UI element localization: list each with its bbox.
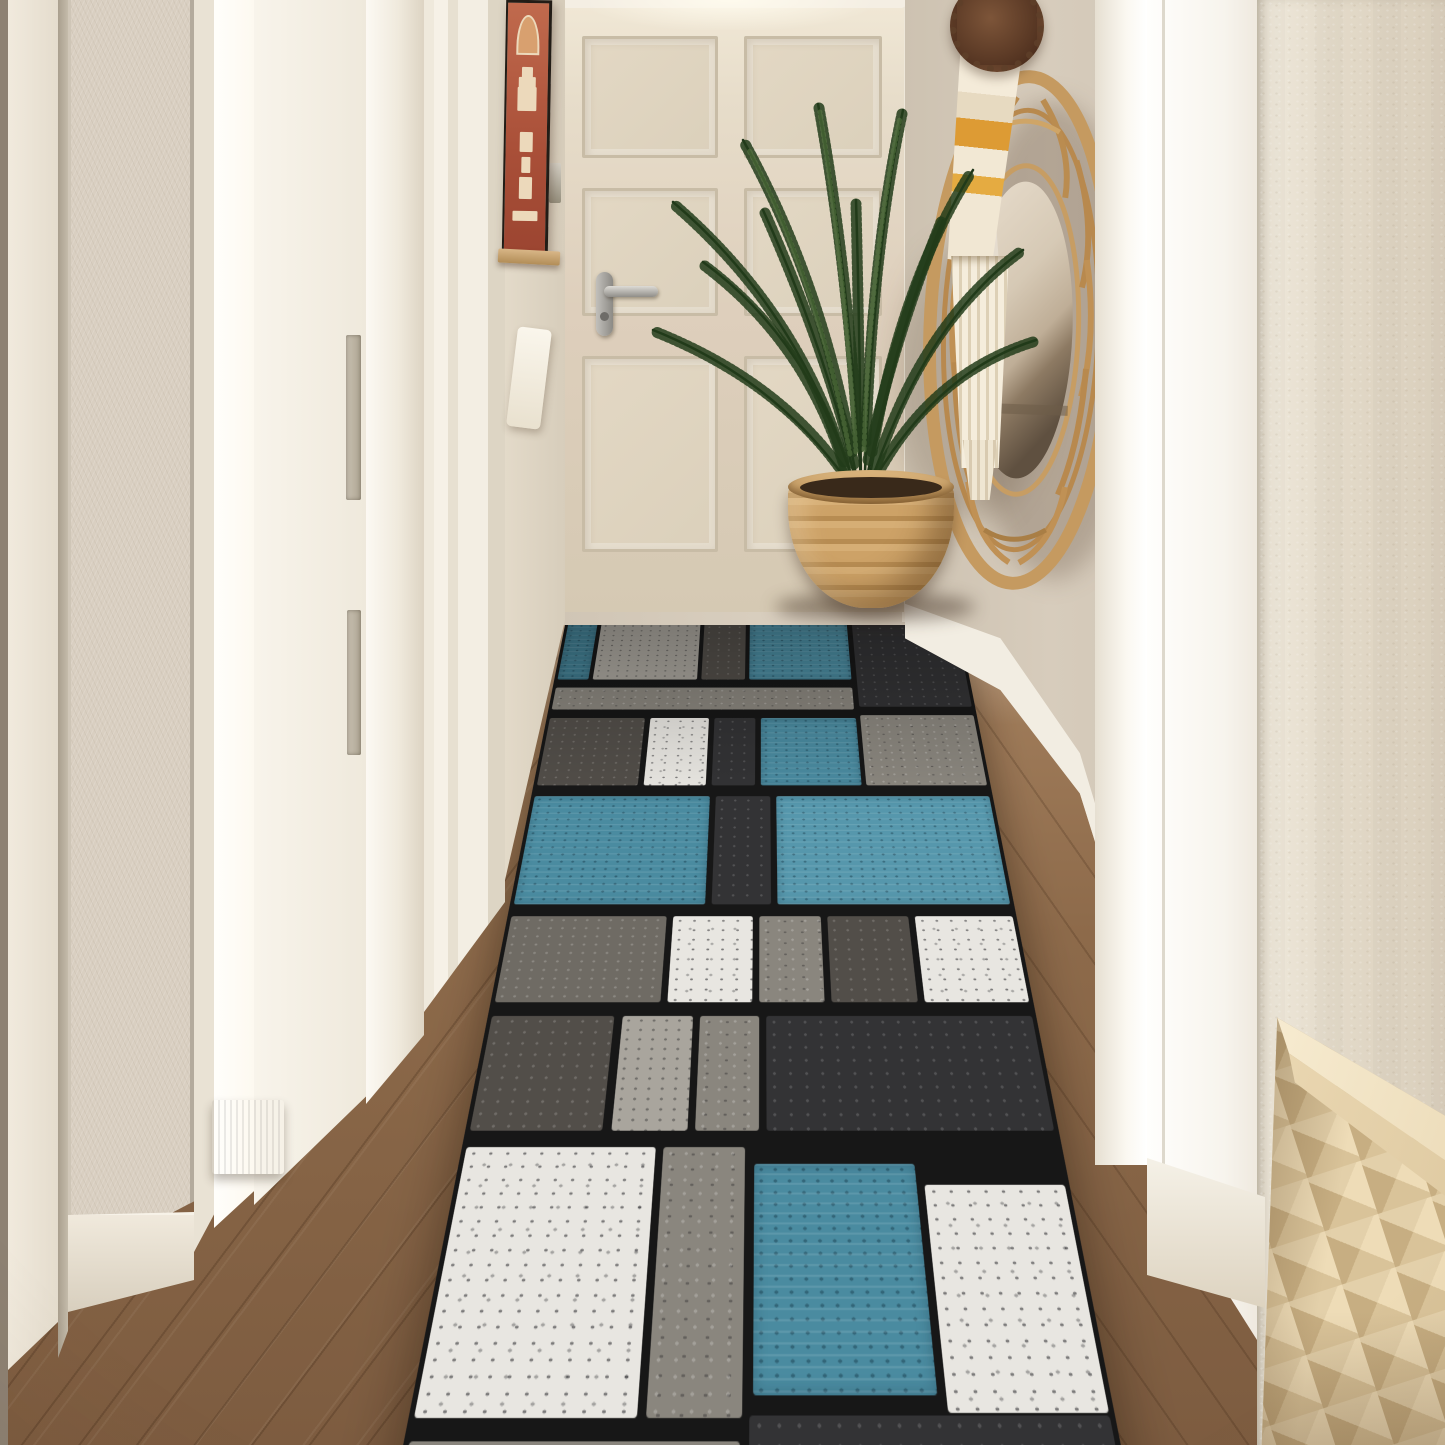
transom-light-glow (590, 0, 870, 30)
rug-block (668, 916, 753, 1002)
door-hinge (549, 163, 561, 203)
areca-palm-plant (608, 82, 1048, 512)
rug-block (702, 619, 747, 679)
rug-block (759, 916, 824, 1002)
doorway-white-frame (1095, 0, 1147, 1165)
rug-block (495, 916, 667, 1002)
rug-block (537, 718, 645, 786)
lit-door-edge (214, 0, 254, 1228)
rug-block (750, 619, 852, 679)
rug-block (552, 688, 854, 710)
left-door-gap (58, 0, 68, 1358)
rug-block (712, 796, 771, 904)
rug-block (593, 619, 701, 679)
red-vintage-poster (502, 0, 552, 254)
rug-block (776, 796, 1010, 904)
rug-block (643, 718, 709, 786)
bright-door-stile (366, 0, 424, 1150)
rug-block (761, 718, 862, 786)
rug-block (827, 916, 918, 1002)
poster-text-mark (519, 176, 532, 198)
rug-block (712, 718, 756, 786)
left-edge-shadow (0, 0, 8, 1445)
rug-block (752, 1164, 938, 1395)
rug-block (611, 1016, 694, 1130)
rug-block (470, 1016, 615, 1130)
rug-block (558, 619, 599, 679)
poster-text-mark (513, 211, 538, 221)
white-doorstop-block (212, 1100, 284, 1174)
doorway-frame-line (1162, 0, 1165, 1180)
rug-block (696, 1016, 760, 1130)
left-trim (194, 0, 214, 1252)
rug-block (915, 916, 1029, 1002)
carved-wood-cabinet (1250, 1000, 1445, 1445)
door-recessed-pull-top (346, 335, 361, 500)
beige-textured-pillar (68, 0, 194, 1320)
rug-block (748, 1415, 1158, 1445)
rug-block (860, 715, 987, 786)
poster-text-mark (521, 157, 530, 173)
poster-arch-graphic (516, 15, 540, 55)
basket-inner-soil (800, 477, 942, 498)
poster-text-mark (519, 132, 533, 152)
rug-block (514, 796, 710, 904)
hallway-scene: Sunlit hallway photo: cream paneled door… (0, 0, 1445, 1445)
door-recessed-pull-bottom (347, 610, 361, 755)
white-pocket-door (254, 0, 366, 1205)
poster-text-mark (517, 87, 536, 111)
rug-block (645, 1147, 745, 1419)
left-door-far (8, 0, 58, 1370)
rug-block (766, 1016, 1053, 1130)
